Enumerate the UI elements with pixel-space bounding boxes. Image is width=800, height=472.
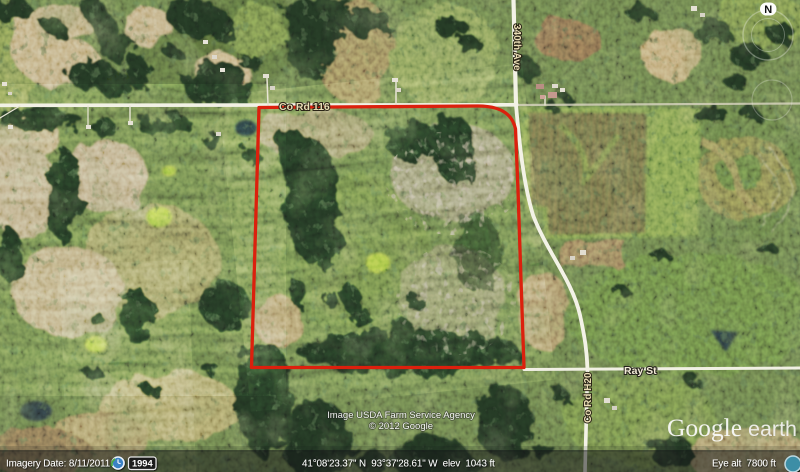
svg-text:earth: earth (748, 417, 797, 441)
svg-text:Co Rd 116: Co Rd 116 (279, 101, 330, 113)
svg-text:Image USDA Farm Service Agency: Image USDA Farm Service Agency (327, 410, 475, 421)
svg-text:Imagery Date: 8/11/2011: Imagery Date: 8/11/2011 (6, 459, 110, 470)
svg-text:© 2012 Google: © 2012 Google (369, 421, 433, 432)
svg-text:Eye alt 7800 ft: Eye alt 7800 ft (712, 459, 776, 470)
svg-text:N: N (764, 4, 772, 16)
svg-text:41°08'23.37" N 93°37'28.61" W: 41°08'23.37" N 93°37'28.61" W elev 1043 … (302, 459, 495, 470)
svg-text:Co Rd H20: Co Rd H20 (583, 372, 594, 423)
svg-text:Ray St: Ray St (624, 365, 657, 377)
svg-text:340th Ave: 340th Ave (511, 24, 522, 71)
svg-text:1994: 1994 (132, 459, 154, 469)
svg-text:Google: Google (667, 413, 742, 442)
